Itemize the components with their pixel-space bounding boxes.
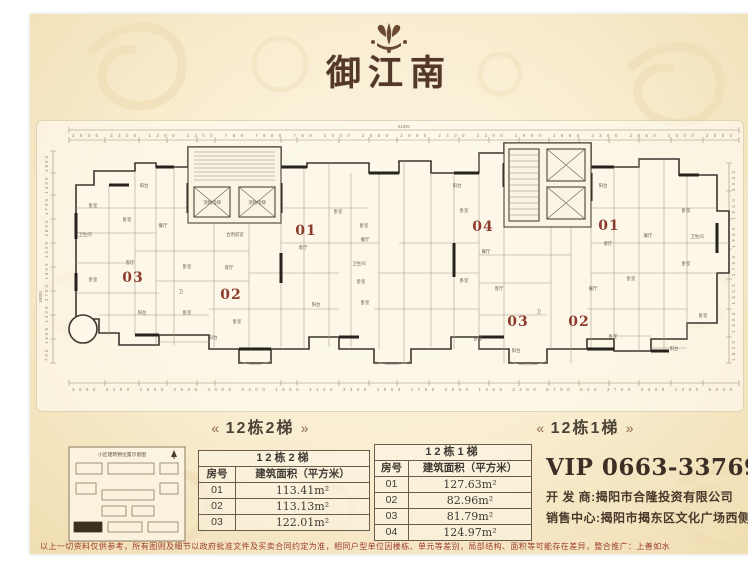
floor-plan-panel: 51000 3000 3300 1300 2300 750 7800 750 4…	[36, 120, 744, 412]
unit-number: 03	[122, 270, 143, 286]
column-header-room: 房号	[199, 467, 236, 483]
room-label: 卧室	[699, 312, 708, 319]
table-row: 01127.63m²	[375, 477, 532, 493]
svg-text:51000: 51000	[398, 124, 410, 129]
room-label: 合用前室	[226, 231, 244, 238]
room-label: 卧室	[357, 278, 366, 285]
room-label: 卧室	[460, 277, 469, 284]
stair-elevator-core-left	[188, 147, 281, 223]
flourish-left-icon: «	[211, 420, 219, 436]
column-header-area: 建筑面积（平方米）	[235, 467, 369, 483]
column-header-room: 房号	[375, 461, 409, 477]
room-label: 餐厅	[482, 248, 491, 255]
plan-captions: « 12栋2梯 » « 12栋1梯 »	[30, 414, 748, 438]
room-label: 卫	[537, 309, 542, 314]
table-row: 01113.41m²	[199, 483, 370, 499]
turret-bay	[69, 315, 97, 343]
logo-title: 御江南	[30, 56, 748, 91]
table-cell: 02	[199, 499, 236, 515]
room-label: 阳台	[599, 182, 608, 189]
sales-center-line: 销售中心:揭阳市揭东区文化广场西侧	[546, 509, 746, 526]
room-label: 阳台	[138, 309, 147, 316]
caption-building-12-2: « 12栋2梯 »	[160, 414, 360, 438]
unit-number: 03	[507, 314, 528, 330]
svg-text:1800 1300 1500 2700 1900 1500: 1800 1300 1500 2700 1900 1500 3000	[731, 170, 736, 361]
room-label: 卧室	[361, 299, 370, 306]
fleur-de-lis-icon	[367, 22, 411, 56]
brochure-page: 御江南 51000 3000 3300 1300 2300 750 7800 7…	[30, 14, 748, 554]
room-label: 卧室	[682, 260, 691, 267]
caption-building-12-1: « 12栋1梯 »	[485, 414, 685, 438]
room-label: 卧室	[627, 275, 636, 282]
room-label: 卧室	[89, 202, 98, 209]
room-label: 卧室	[682, 207, 691, 214]
table-cell: 81.79m²	[408, 509, 531, 525]
room-label: 卫生间	[352, 260, 365, 267]
room-label: 卧室	[474, 335, 483, 342]
table-title: 12栋1梯	[375, 445, 532, 461]
table-cell: 124.97m²	[408, 525, 531, 541]
svg-text:700 1500 1300 2700 1900 1300 2: 700 1500 1300 2700 1900 1300 2800 1700 1…	[44, 155, 49, 361]
flourish-right-icon: »	[301, 420, 309, 436]
table-cell: 113.41m²	[235, 483, 369, 499]
table-row: 04124.97m²	[375, 525, 532, 541]
site-plan-minimap: 小区建筑物位置示意图	[68, 446, 186, 542]
room-label: 餐厅	[361, 236, 370, 243]
table-building-12-1: 12栋1梯 房号 建筑面积（平方米） 01127.63m²0282.96m²03…	[374, 444, 532, 541]
table-cell: 01	[199, 483, 236, 499]
table-cell: 03	[199, 515, 236, 531]
room-label: 卧室	[183, 309, 192, 316]
disclaimer-text: 以上一切资料仅供参考，所有图则及细节以政府批准文件及买卖合同约定为准，相同户型单…	[40, 541, 740, 552]
room-label: 卧室	[334, 208, 343, 215]
room-label: 客厅	[126, 259, 135, 266]
svg-text:3000 3300 1300 2300 750 7800 7: 3000 3300 1300 2300 750 7800 750 4000 25…	[72, 133, 733, 138]
table-title: 12栋2梯	[199, 451, 370, 467]
table-cell: 04	[375, 525, 409, 541]
unit-number: 01	[295, 223, 316, 239]
room-label: 卧室	[89, 276, 98, 283]
room-label: 阳台	[209, 334, 218, 341]
room-label: 卫	[179, 289, 184, 294]
table-cell: 122.01m²	[235, 515, 369, 531]
room-label: 阳台	[670, 345, 679, 352]
room-label: 卧室	[360, 222, 369, 229]
table-cell: 01	[375, 477, 409, 493]
room-label: 消防电梯	[203, 199, 221, 206]
room-label: 客厅	[225, 264, 234, 271]
caption-text: 12栋1梯	[551, 420, 620, 437]
caption-text: 12栋2梯	[226, 420, 295, 437]
room-label: 客厅	[299, 244, 308, 251]
minimap-title: 小区建筑物位置示意图	[98, 451, 146, 458]
room-label: 阳台	[140, 182, 149, 189]
unit-number: 04	[472, 219, 493, 235]
table-cell: 127.63m²	[408, 477, 531, 493]
table-cell: 03	[375, 509, 409, 525]
room-label: 阳台	[312, 301, 321, 308]
room-label: 客厅	[604, 240, 613, 247]
contact-block: VIP 0663-3376999 开 发 商:揭阳市合隆投资有限公司 销售中心:…	[546, 454, 746, 526]
svg-text:3000 4100 1600 2600 4000 3300: 3000 4100 1600 2600 4000 3300 1900 3100 …	[72, 387, 733, 392]
logo: 御江南	[30, 22, 748, 91]
table-building-12-2: 12栋2梯 房号 建筑面积（平方米） 01113.41m²02113.13m²0…	[198, 450, 370, 531]
room-label: 卫生间	[78, 231, 91, 238]
table-row: 02113.13m²	[199, 499, 370, 515]
room-label: 阳台	[453, 182, 462, 189]
table-cell: 113.13m²	[235, 499, 369, 515]
room-label: 阳台	[512, 347, 521, 354]
room-label: 卧室	[609, 333, 618, 340]
room-label: 卫生间	[690, 233, 703, 240]
room-label: 客厅	[495, 285, 504, 292]
flourish-left-icon: «	[536, 420, 544, 436]
developer-line: 开 发 商:揭阳市合隆投资有限公司	[546, 488, 746, 505]
vip-phone: VIP 0663-3376999	[546, 454, 746, 481]
table-row: 0282.96m²	[375, 493, 532, 509]
table-cell: 82.96m²	[408, 493, 531, 509]
room-label: 餐厅	[589, 285, 598, 292]
unit-number: 01	[598, 218, 619, 234]
unit-number: 02	[568, 314, 589, 330]
unit-number: 02	[220, 287, 241, 303]
room-label: 卧室	[123, 216, 132, 223]
room-label: 卧室	[460, 207, 469, 214]
flourish-right-icon: »	[626, 420, 634, 436]
highlighted-building-12	[74, 522, 102, 532]
svg-text:19000: 19000	[39, 291, 43, 303]
table-row: 03122.01m²	[199, 515, 370, 531]
floor-plan: 51000 3000 3300 1300 2300 750 7800 750 4…	[39, 123, 741, 405]
room-label: 卧室	[183, 263, 192, 270]
table-cell: 02	[375, 493, 409, 509]
table-row: 0381.79m²	[375, 509, 532, 525]
column-header-area: 建筑面积（平方米）	[408, 461, 531, 477]
room-label: 消防电梯	[248, 199, 266, 206]
stair-elevator-core-right	[504, 143, 591, 227]
room-label: 餐厅	[159, 222, 168, 229]
room-label: 卧室	[233, 318, 242, 325]
room-label: 餐厅	[644, 232, 653, 239]
